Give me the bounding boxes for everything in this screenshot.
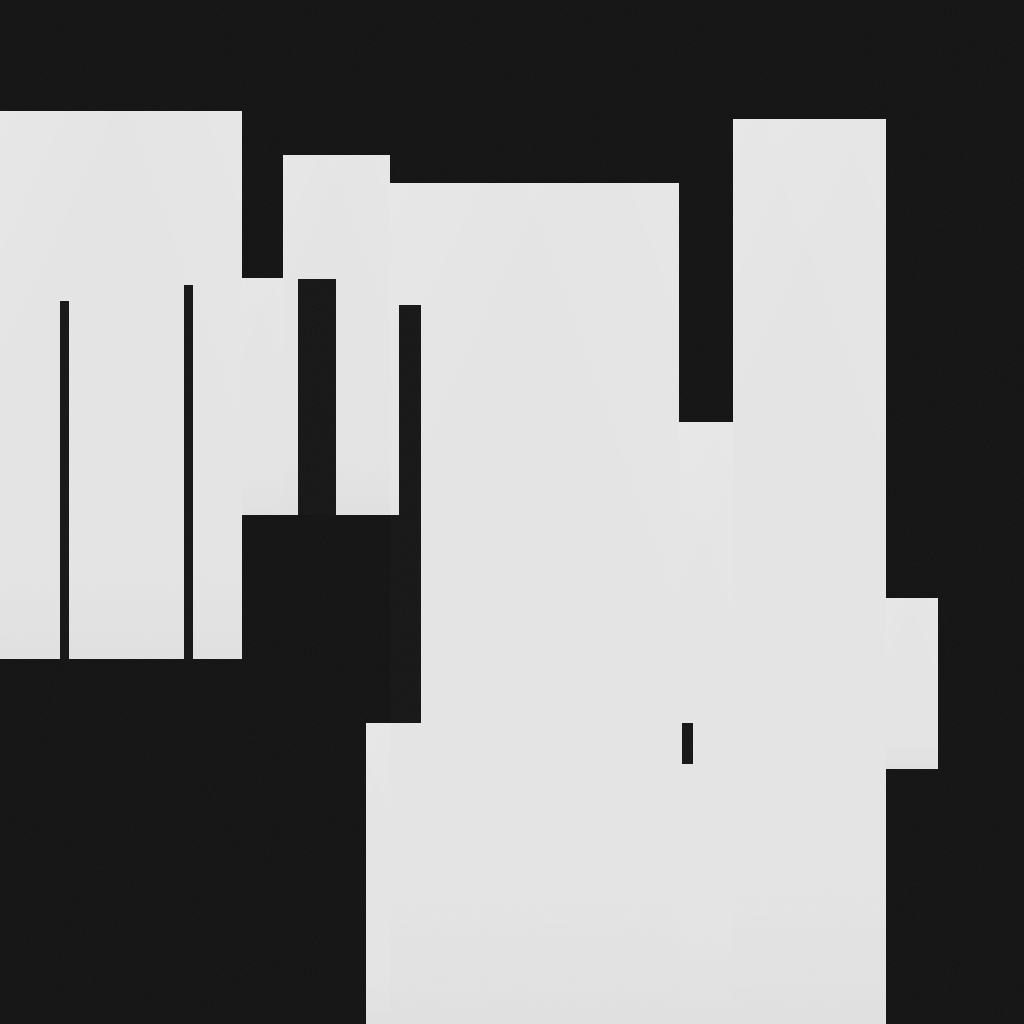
panel-right-column xyxy=(733,119,886,1024)
panel-left-lower-slice xyxy=(242,278,283,515)
panel-right-bump xyxy=(886,598,938,769)
thin-bar-mid-left xyxy=(184,285,193,659)
wide-bar-mid xyxy=(298,279,336,515)
abstract-canvas xyxy=(0,0,1024,1024)
thin-bar-left xyxy=(60,301,69,659)
bar-center-upper xyxy=(399,305,421,515)
small-notch-bar xyxy=(682,723,693,764)
panel-bottom-left-extension xyxy=(366,723,390,1024)
bar-center-lower xyxy=(390,515,421,723)
panel-top-left xyxy=(0,111,242,659)
panel-center xyxy=(390,183,679,1024)
